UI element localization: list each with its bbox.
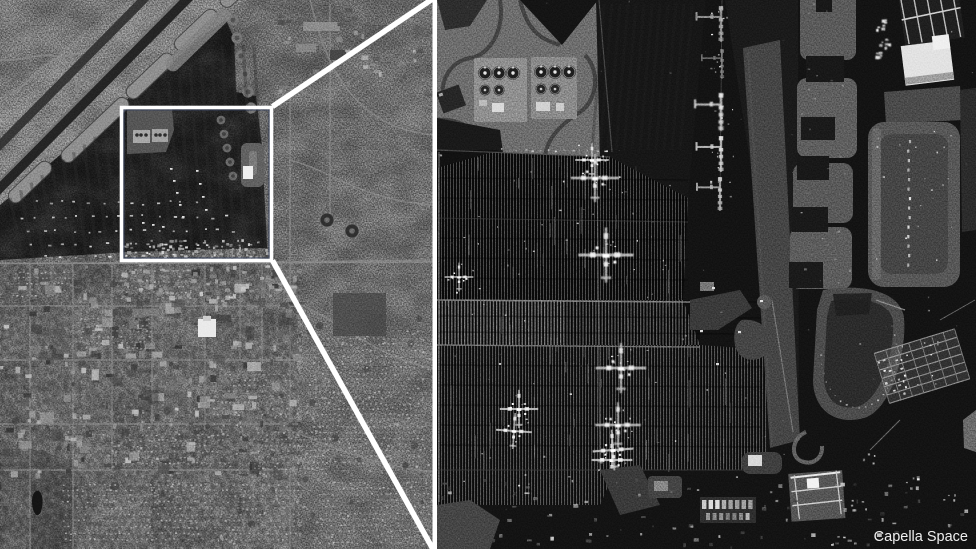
svg-text:Capella Space: Capella Space xyxy=(874,529,968,545)
